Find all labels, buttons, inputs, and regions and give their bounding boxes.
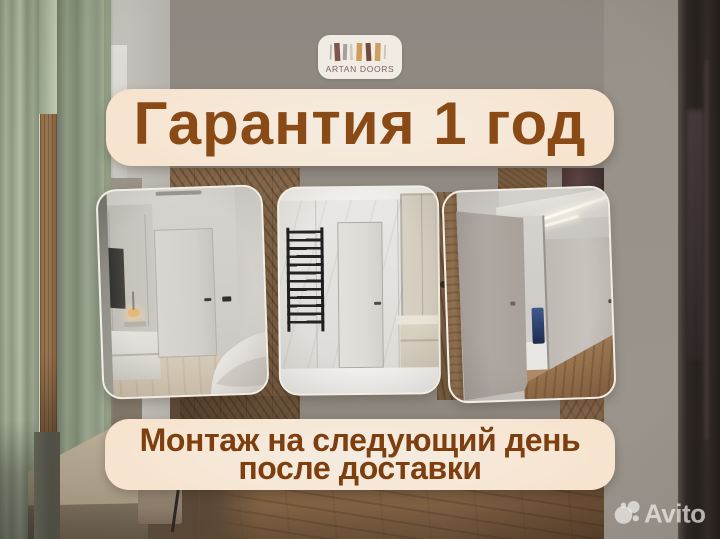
svg-text:Avito: Avito [644,499,706,529]
